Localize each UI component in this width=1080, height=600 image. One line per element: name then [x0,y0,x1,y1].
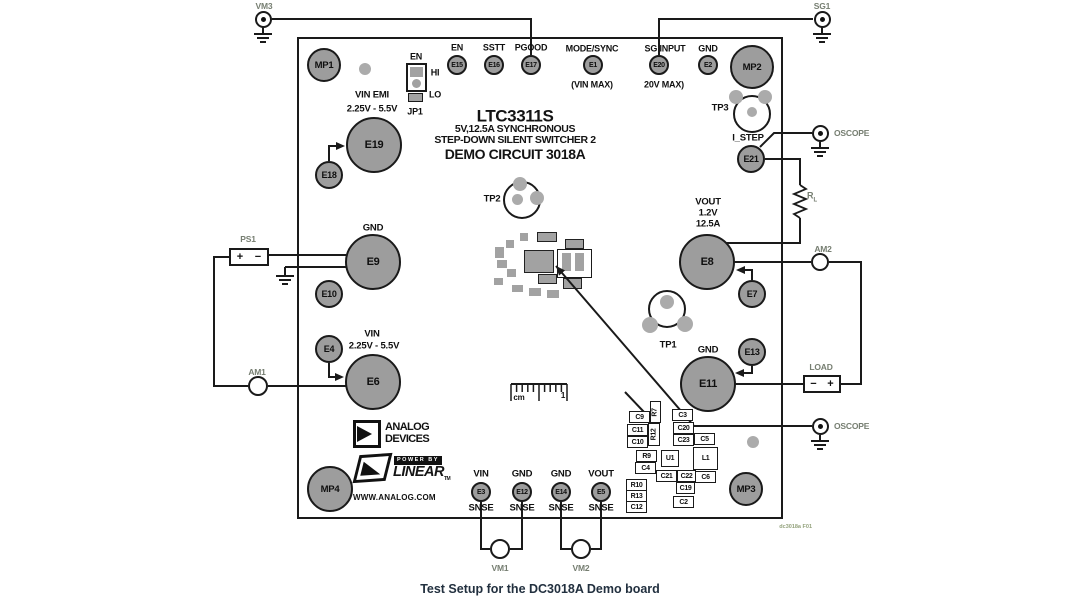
component-C4: C4 [635,462,656,474]
via-dot [747,107,757,117]
pad-E20: E20 [649,55,669,75]
jp1-jumper [406,63,427,92]
label-oscope: OSCOPE [834,129,869,138]
pad-E4: E4 [315,335,343,363]
component-C2: C2 [673,496,694,508]
resistor-rl-icon [794,185,806,218]
board-subtitle-1: 5V,12.5A SYNCHRONOUS [455,124,575,135]
label-vin_range: 2.25V - 5.5V [349,341,399,351]
oscope-top-connector [812,125,829,142]
load-plus-terminal: + [827,379,833,390]
label-lo: LO [429,91,441,100]
oscope-bottom-connector [812,418,829,435]
label-vin_snse: VIN [473,469,488,479]
pad-E19: E19 [346,117,402,173]
ps1-plus-terminal: + [237,252,243,263]
mount-pad-MP3: MP3 [729,472,763,506]
ground-icon [813,34,831,42]
label-i_step: I_STEP [732,133,764,143]
jp1-pin [412,79,421,88]
label-unit: cm [513,394,524,402]
label-gnd_top: GND [698,45,717,54]
label-sg_max: 20V MAX) [644,81,684,90]
pad-E11: E11 [680,356,736,412]
label-oscope: OSCOPE [834,422,869,431]
pad-E21: E21 [737,145,765,173]
vm2-connector [571,539,591,559]
component-C10: C10 [627,436,648,448]
label-name: PS1 [240,235,255,244]
pad-E8: E8 [679,234,735,290]
component-C12: C12 [626,501,647,513]
sg1-connector [814,11,831,28]
arrowhead-icon [735,369,744,377]
label-sg1: SG1 [814,2,830,11]
linear-wordmark: LINEARTM [393,465,450,482]
label-hi: HI [431,69,440,78]
label-vin_e6: VIN [364,329,379,339]
component-C20: C20 [673,422,694,434]
wire [829,262,861,384]
label-gnd_snse_a: GND [512,469,533,479]
component-R7: R7 [650,401,661,423]
pad-E7: E7 [738,280,766,308]
label-snse: SNSE [468,503,493,513]
via-dot [660,295,674,309]
label-vm1: VM1 [492,564,509,573]
component-R9: R9 [636,450,657,462]
test-setup-diagram: LTC3311S 5V,12.5A SYNCHRONOUS STEP-DOWN … [0,0,1080,600]
via-dot [513,177,527,191]
am2-connector [811,253,829,271]
mount-pad-MP4: MP4 [307,466,353,512]
pad-E1: E1 [583,55,603,75]
pad-E2: E2 [698,55,718,75]
adi-wordmark-analog: ANALOG [385,422,429,433]
label-TP1: TP1 [660,340,677,350]
label-vout_v: 1.2V [699,208,718,218]
wire [765,159,800,185]
vm3-connector [255,11,272,28]
pad-E15: E15 [447,55,467,75]
vm1-connector [490,539,510,559]
ground-icon [811,441,829,449]
power-supply-ps1: + − [229,248,269,266]
pad-E5: E5 [591,482,611,502]
label-name: LOAD [809,363,832,372]
board-subtitle-2: STEP-DOWN SILENT SWITCHER 2 [434,135,595,146]
label-vin_emi_range: 2.25V - 5.5V [347,104,397,114]
jp1-shunt [410,67,423,77]
pad-E6: E6 [345,354,401,410]
via-dot [530,191,544,205]
figure-caption: Test Setup for the DC3018A Demo board [420,582,660,596]
component-C5: C5 [694,433,715,445]
mount-pad-MP2: MP2 [730,45,774,89]
component-C6: C6 [695,471,716,483]
via-dot [359,63,371,75]
pad-E12: E12 [512,482,532,502]
pad-E17: E17 [521,55,541,75]
label-mode_sync: MODE/SYNC [566,45,619,54]
component-C9: C9 [629,411,650,423]
figure-code: dc3018a F01 [779,524,812,530]
pad-E10: E10 [315,280,343,308]
pad-E18: E18 [315,161,343,189]
arrowhead-icon [336,142,345,150]
component-C22: C22 [677,470,696,482]
adi-wordmark-devices: DEVICES [385,434,429,445]
arrowhead-icon [335,373,344,381]
component-C23: C23 [673,434,694,446]
jp1-lower-pin [408,93,423,102]
component-C11: C11 [627,424,648,436]
label-gnd_e9: GND [363,223,384,233]
label-am1: AM1 [248,368,265,377]
label-vm2: VM2 [573,564,590,573]
component-C3: C3 [672,409,693,421]
label-vin_emi: VIN EMI [355,90,389,100]
via-dot [747,436,759,448]
pad-E9: E9 [345,234,401,290]
am1-connector [248,376,268,396]
analog-devices-logo-icon [353,420,381,448]
via-dot [729,90,743,104]
analog-url: WWW.ANALOG.COM [353,493,436,502]
load-box: − + [803,375,841,393]
label-en: EN [410,53,422,62]
mount-pad-MP1: MP1 [307,48,341,82]
arrowhead-icon [736,266,745,274]
label-sstt_header: SSTT [483,44,505,53]
label-snse: SNSE [588,503,613,513]
label-vout_snse: VOUT [588,469,614,479]
label-vout_a: 12.5A [696,219,720,229]
ground-icon [254,34,272,42]
label-am2: AM2 [814,245,831,254]
component-L1: L1 [693,447,718,470]
wire-layer [0,0,1080,600]
via-dot [512,194,523,205]
load-resistor-label: RL [807,191,817,204]
label-snse: SNSE [548,503,573,513]
pad-E13: E13 [738,338,766,366]
pad-E16: E16 [484,55,504,75]
label-vin_max: (VIN MAX) [571,81,613,90]
ps1-minus-terminal: − [255,252,261,263]
via-dot [642,317,658,333]
component-R12: R12 [648,423,660,446]
wire [625,392,644,412]
wire [760,133,812,147]
label-gnd_e11: GND [698,345,719,355]
label-snse: SNSE [509,503,534,513]
label-name: JP1 [407,108,422,117]
label-gnd_snse_b: GND [551,469,572,479]
label-TP2: TP2 [484,194,501,204]
wire [214,257,248,386]
wire [556,266,812,426]
label-vout: VOUT [695,197,721,207]
component-U1: U1 [661,450,679,467]
label-mark: 1 [561,392,565,400]
wire [726,218,800,243]
label-sg_input: SG INPUT [645,45,686,54]
label-pgood_header: PGOOD [515,44,548,53]
board-demo-circuit: DEMO CIRCUIT 3018A [445,147,586,161]
via-dot [758,90,772,104]
label-TP3: TP3 [712,103,729,113]
label-vm3: VM3 [256,2,273,11]
via-dot [677,316,693,332]
component-C19: C19 [676,482,695,494]
pad-E14: E14 [551,482,571,502]
load-minus-terminal: − [810,379,816,390]
ground-icon [276,276,294,284]
component-C21: C21 [656,470,677,482]
pad-E3: E3 [471,482,491,502]
ground-icon [811,148,829,156]
label-en_header: EN [451,44,463,53]
